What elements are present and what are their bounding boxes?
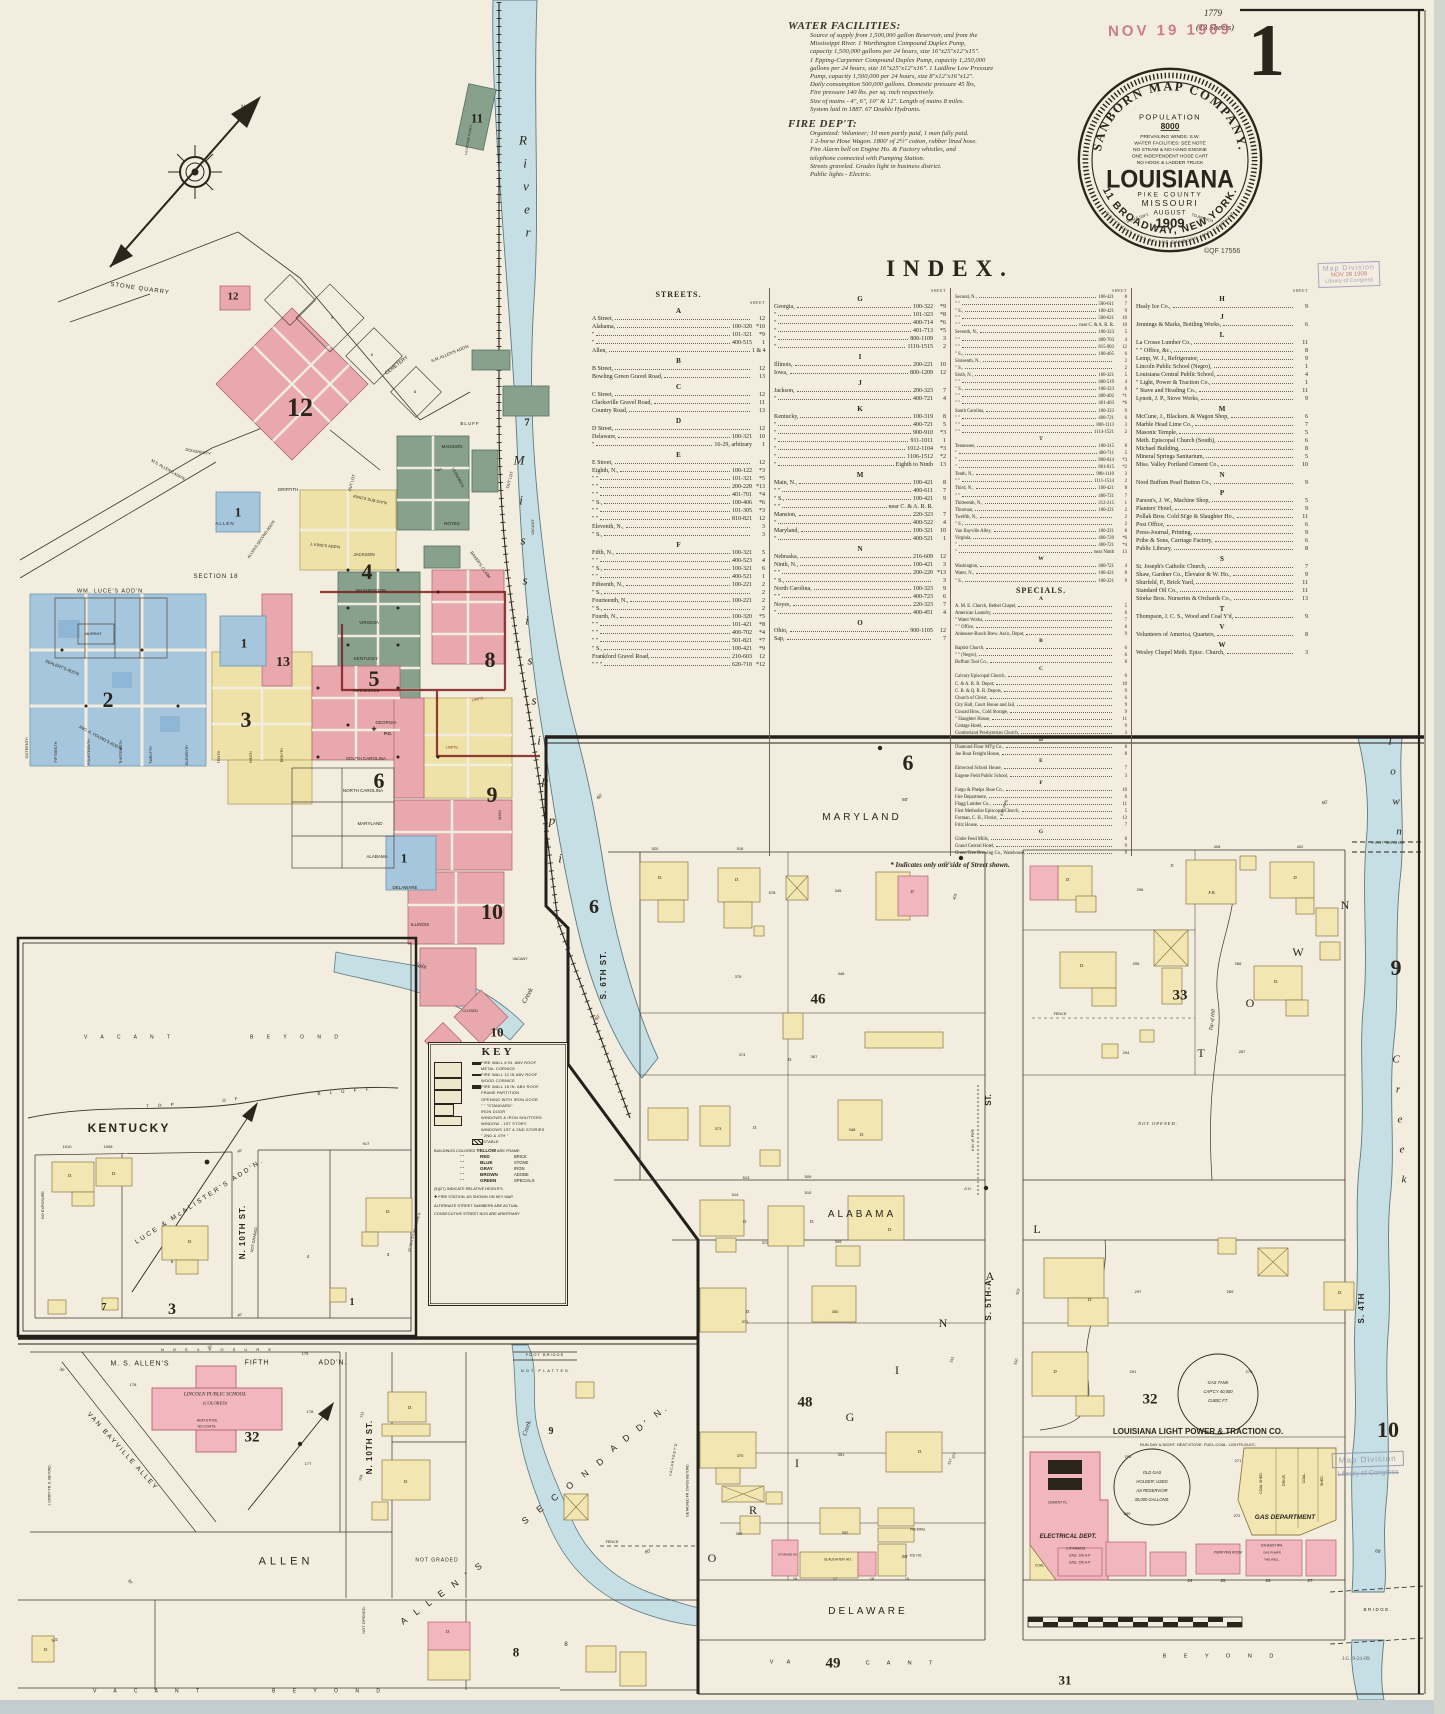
index-entry-sheet: 7 — [933, 636, 946, 643]
index-entry: Nord Buffum Pearl Button Co.,9 — [1136, 479, 1308, 487]
index-entry-range: 1012-1104 — [907, 446, 933, 453]
index-entry-sheet: 5 — [1295, 430, 1308, 437]
index-entry-sheet: 2 — [933, 344, 946, 351]
index-entry-name: Illinois, — [774, 362, 793, 369]
index-entry-range: 101-323 — [913, 312, 933, 319]
index-entry: "800-814*3 — [955, 456, 1127, 463]
index-entry-name: " S., — [955, 352, 963, 357]
index-entry: Lemp, W. J., Refrigerator,9 — [1136, 355, 1308, 363]
index-entry: Parson's, J. W., Machine Shop,5 — [1136, 497, 1308, 505]
index-entry: Flagg Lumber Co.,11 — [955, 800, 1127, 807]
index-entry-sheet: 11 — [752, 400, 765, 407]
seal-note-line: WATER FACILITIES: SEE NOTE — [1134, 140, 1206, 146]
index-entry-range: 400-522 — [913, 520, 933, 527]
index-entry-sheet: *12 — [752, 662, 765, 669]
index-entry: Mineral Springs Sanitarium,5 — [1136, 453, 1308, 461]
index-entry-sheet: 8 — [1295, 632, 1308, 639]
index-entry-name: Delaware, — [592, 434, 616, 441]
index-entry-name: Iowa, — [774, 370, 788, 377]
scanner-edge-bottom — [0, 1700, 1445, 1714]
index-entry: "400-5151 — [592, 339, 765, 347]
library-stamp-bottom: Map Division Library of Congress — [1332, 1451, 1405, 1478]
index-letter: V — [1136, 623, 1308, 631]
index-entry-name: City Hall, Court House and Jail, — [955, 703, 1015, 708]
index-entry-sheet: 7 — [1114, 823, 1127, 828]
key-footer-line: CONSECUTIVE STREET NOS ARE ARBITRARY — [434, 1211, 562, 1217]
index-leader — [1223, 321, 1293, 326]
index-leader — [604, 589, 750, 594]
index-entry-name: " S., — [592, 606, 602, 613]
index-leader — [1175, 505, 1293, 510]
index-entry-sheet: 7 — [1114, 302, 1127, 307]
index-entry-range: 400-519 — [1098, 380, 1114, 385]
index-entry: Planters' Hotel,9 — [1136, 505, 1308, 513]
index-entry: Thompson, J. C. S., Wood and Coal Y'd,9 — [1136, 613, 1308, 621]
index-entry-name: Thurman, — [955, 508, 973, 513]
index-leader — [965, 350, 1096, 355]
index-entry-sheet: 6 — [1114, 352, 1127, 357]
index-entry: Thirteenth, N.,212-2151 — [955, 499, 1127, 506]
index-entry-sheet: 3 — [1114, 423, 1127, 428]
index-entry-name: St. Joseph's Catholic Church, — [1136, 564, 1206, 571]
index-leader — [600, 475, 730, 480]
index-entry-name: Church of Christ, — [955, 696, 988, 701]
index-entry: Second, N.,100-4218 — [955, 293, 1127, 300]
index-entry-name: Eleventh, N., — [592, 524, 624, 531]
index-leader — [814, 585, 911, 590]
index-entry-name: Louisiana Central Public School, — [1136, 372, 1215, 379]
index-entry: "101-321*9 — [592, 331, 765, 339]
index-entry: " " (Negro),6 — [955, 651, 1127, 658]
index-entry-name: Cumberland Presbyterian Church, — [955, 731, 1019, 736]
index-entry-sheet: 7 — [1295, 564, 1308, 571]
index-entry-name: " S., — [774, 578, 784, 585]
index-entry-name: " " — [592, 484, 598, 491]
index-entry: Noyes,220-3237 — [774, 601, 946, 609]
index-leader — [786, 577, 931, 582]
index-letter: M — [1136, 405, 1308, 413]
index-entry-sheet: 12 — [752, 392, 765, 399]
index-entry-name: Eighth, N., — [592, 468, 618, 475]
index-entry-name: " — [774, 446, 776, 453]
index-entry-sheet: *4 — [1114, 543, 1127, 548]
index-entry-range: 1111-1514 — [1094, 479, 1114, 484]
index-leader — [600, 637, 730, 642]
index-entry-sheet: 9 — [1114, 579, 1127, 584]
index-entry: Fifth, N.,100-3215 — [592, 549, 765, 557]
index-entry-range: 400-521 — [913, 536, 933, 543]
index-leader — [778, 445, 905, 450]
index-column-streets-1: STREETS.SHEETAA Street,12Alabama,100-320… — [588, 288, 769, 856]
index-leader — [1006, 786, 1112, 791]
key-row-label: STABLE — [483, 1139, 499, 1145]
index-entry-range: 1110-1515 — [907, 344, 933, 351]
index-entry: Clarksville Gravel Road,11 — [592, 399, 765, 407]
index-entry-sheet: 7 — [1295, 422, 1308, 429]
index-entry-range: 100-421 — [732, 646, 752, 653]
index-entry-name: " — [774, 454, 776, 461]
index-entry-sheet: 10 — [1295, 462, 1308, 469]
note-line: Pump, capacity 1,500,000 per 24 hours, s… — [788, 73, 1118, 81]
index-entry-sheet: 12 — [752, 654, 765, 661]
index-leader — [1199, 387, 1293, 392]
library-stamp-top: Map Division NOV 28 1909 Library of Cong… — [1318, 261, 1381, 288]
index-entry-range: 16-29, arbitrary — [714, 442, 752, 449]
index-entry-name: " — [774, 328, 776, 335]
index-leader — [985, 499, 1097, 504]
index-entry: Virginia,400-720*6 — [955, 534, 1127, 541]
index-entry: " "400-7034 — [955, 336, 1127, 343]
index-leader — [959, 541, 1096, 546]
index-entry: " "400-402*1 — [955, 392, 1127, 399]
index-entry-range: 100-221 — [1098, 579, 1114, 584]
index-entry-name: " S., — [592, 532, 602, 539]
index-leader — [1022, 807, 1112, 812]
index-entry-range: 100-319 — [913, 414, 933, 421]
index-entry-sheet: *6 — [1114, 536, 1127, 541]
index-entry-range: 400-721 — [1098, 416, 1114, 421]
index-entry-name: Joe Boat Freight House, — [955, 752, 1000, 757]
index-entry-sheet: 6 — [933, 594, 946, 601]
index-entry: A. M. E. Church, Bethel Chapel,5 — [955, 602, 1127, 609]
index-entry-name: Pribe & Sons, Carriage Factory, — [1136, 538, 1213, 545]
index-leader — [1200, 355, 1293, 360]
index-entry: Elmwood School House,7 — [955, 764, 1127, 771]
index-entry-sheet: 4 — [1295, 372, 1308, 379]
index-letter: J — [774, 379, 946, 387]
index-entry-name: " " Office, — [955, 625, 974, 630]
index-leader — [600, 483, 730, 488]
index-entry-sheet: 8 — [1295, 446, 1308, 453]
seal-note-line: ONE INDEPENDENT HOSE CART — [1132, 154, 1209, 160]
index-entry-sheet: 7 — [933, 388, 946, 395]
index-entry-range: 100-321 — [732, 434, 752, 441]
index-entry-sheet: 2 — [752, 598, 765, 605]
index-entry-sheet: 9 — [1114, 844, 1127, 849]
index-leader — [664, 373, 750, 378]
index-entry-sheet: 6 — [1114, 416, 1127, 421]
index-entry-name: Press-Journal, Printing, — [1136, 530, 1192, 537]
index-entry-sheet: 10 — [933, 528, 946, 535]
index-entry-sheet: 2 — [1114, 430, 1127, 435]
index-entry-sheet: 8 — [1295, 348, 1308, 355]
index-leader — [782, 503, 886, 508]
index-leader — [975, 506, 1096, 511]
index-entry-name: Ninth, N., — [774, 562, 798, 569]
note-line: Organized: Volunteer; 10 men partly paid… — [788, 130, 1118, 138]
index-entry-sheet: 13 — [752, 408, 765, 415]
index-entry-sheet: 2 — [1114, 359, 1127, 364]
index-entry-name: Lynott, J. P., Stove Works, — [1136, 396, 1199, 403]
surveyor-note: J.G. 9-21-09 — [1342, 1656, 1370, 1662]
index-leader — [1174, 545, 1293, 550]
index-entry-range: 100-323 — [913, 586, 933, 593]
index-leader — [975, 371, 1096, 376]
index-entry-name: North Carolina, — [774, 586, 812, 593]
index-entry-sheet: 5 — [1295, 454, 1308, 461]
index-entry-range: 100-421 — [1098, 571, 1114, 576]
index-entry-name: " S., — [592, 500, 602, 507]
index-entry: Church of Christ,6 — [955, 694, 1127, 701]
index-entry-sheet: *4 — [752, 630, 765, 637]
index-leader — [1215, 537, 1293, 542]
index-entry-name: Lincoln Public School (Negro), — [1136, 364, 1212, 371]
index-entry-name: Sap, — [774, 636, 785, 643]
index-entry-name: Flagg Lumber Co., — [955, 802, 991, 807]
index-entry-range: 200-221 — [913, 362, 933, 369]
index-entry: " S.,2 — [592, 589, 765, 597]
index-entry-sheet: 9 — [1295, 572, 1308, 579]
index-entry: Ninth, N.,100-4213 — [774, 561, 946, 569]
index-entry: " "500-62110 — [955, 314, 1127, 321]
index-entry-sheet: 8 — [1114, 745, 1127, 750]
index-entry-range: 100-321 — [732, 566, 752, 573]
index-entry-range: 810-821 — [732, 516, 752, 523]
index-entry: Country Road,13 — [592, 407, 765, 415]
index-entry-range: 100-323 — [1098, 387, 1114, 392]
index-leader — [620, 613, 730, 618]
index-leader — [600, 573, 730, 578]
index-entry-sheet: 9 — [1295, 530, 1308, 537]
index-entry-name: " " — [955, 338, 960, 343]
index-leader — [801, 527, 911, 532]
index-entry-range: 100-421 — [913, 496, 933, 503]
index-entry-sheet: *8 — [752, 622, 765, 629]
index-entry-sheet: 13 — [1295, 596, 1308, 603]
key-bld-pre: BUILDINGS COLORED — [434, 1148, 475, 1153]
index-entry-name: Frankford Gravel Road, — [592, 654, 649, 661]
index-entry: "400-5224 — [774, 519, 946, 527]
index-entry-name: Diamond Flour M'f'g Co., — [955, 745, 1004, 750]
index-entry-name: Fifteenth, N., — [592, 582, 624, 589]
index-entry-name: Storke Bros. Nurseries & Orchards Co., — [1136, 596, 1232, 603]
index-leader — [980, 821, 1112, 826]
index-entry-range: 100-122 — [732, 468, 752, 475]
index-entry-name: La Crosse Lumber Co., — [1136, 340, 1192, 347]
index-entry: " "400-5211 — [592, 573, 765, 581]
index-entry-sheet: *8 — [933, 312, 946, 319]
index-letter: N — [1136, 471, 1308, 479]
index-entry: Seventh, N.,100-3235 — [955, 328, 1127, 335]
index-entry-name: " " — [955, 380, 960, 385]
index-letter: G — [774, 295, 946, 303]
index-entry: Main, N.,100-4218 — [774, 479, 946, 487]
index-entry-name: Eugene Field Public School, — [955, 774, 1008, 779]
index-entry-range: 200-220 — [732, 484, 752, 491]
index-entry: "401-713*5 — [774, 327, 946, 335]
index-leader — [965, 385, 1096, 390]
index-entry-name: Kentucky, — [774, 414, 798, 421]
index-entry: Sixth, N.,100-3215 — [955, 371, 1127, 378]
index-entry-sheet: 8 — [1114, 660, 1127, 665]
index-entry-sheet: *2 — [1114, 465, 1127, 470]
index-entry-sheet: 2 — [752, 590, 765, 597]
index-leader — [782, 593, 911, 598]
index-leader — [797, 387, 912, 392]
index-entry: " "810-82112 — [592, 515, 765, 523]
index-leader — [1206, 453, 1293, 458]
key-footer-line: ✚ FIRE STATION, AS SHOWN ON KEY MAP. — [434, 1194, 562, 1200]
index-entry-name: " " — [955, 323, 960, 328]
index-entry-name: Marble Head Lime Co., — [1136, 422, 1193, 429]
index-entry-sheet: 6 — [1114, 795, 1127, 800]
index-entry: " "400-7216 — [955, 414, 1127, 421]
index-entry: Delaware,100-32110 — [592, 433, 765, 441]
index-sheet-header: SHEET — [592, 300, 765, 305]
seal-note-line: PREVAILING WINDS: S.W. — [1140, 134, 1200, 140]
index-leader — [962, 336, 1096, 341]
index-entry: Eighth, N.,100-122*3 — [592, 467, 765, 475]
index-leader — [797, 303, 911, 308]
index-entry: Jennings & Marks, Bottling Works,6 — [1136, 321, 1308, 329]
index-entry-name: " — [774, 430, 776, 437]
index-entry-sheet: 2 — [752, 606, 765, 613]
index-entry-range: 100-406 — [732, 500, 752, 507]
index-entry-sheet: 4 — [1114, 338, 1127, 343]
index-entry: Buffum Tool Co.,8 — [955, 658, 1127, 665]
index-entry: Thurman,100-2212 — [955, 506, 1127, 513]
index-entry-range: 210-603 — [732, 654, 752, 661]
index-letter: P — [1136, 489, 1308, 497]
index-leader — [626, 523, 750, 528]
index-entry-range: 400-721 — [1098, 494, 1114, 499]
index-entry-range: 401-701 — [732, 492, 752, 499]
index-leader — [1026, 630, 1112, 635]
index-entry-name: " Light, Power & Traction Co., — [1136, 380, 1210, 387]
index-entry-name: " " — [592, 492, 598, 499]
index-entry-sheet: 3 — [1295, 650, 1308, 657]
index-entry: " " Office,6 — [955, 623, 1127, 630]
index-entry-name: Buffum Tool Co., — [955, 660, 988, 665]
key-color-desc: SPECIALS — [514, 1178, 534, 1184]
sanborn-map-sheet: RiverMississippi11LA CROSSE PLAN'G7STONE… — [0, 0, 1445, 1714]
index-leader — [962, 392, 1096, 397]
index-entry: " "800-11133 — [955, 421, 1127, 428]
index-entry-sheet: 8 — [1295, 546, 1308, 553]
index-entry-range: 1106-1512 — [907, 454, 933, 461]
index-leader — [800, 553, 911, 558]
key-sample-building — [434, 1060, 468, 1122]
index-entry-sheet: 1 — [1295, 364, 1308, 371]
index-entry-name: " — [955, 458, 957, 463]
index-entry-name: " " — [955, 430, 960, 435]
index-entry-sheet: 8 — [1114, 529, 1127, 534]
index-leader — [1194, 529, 1293, 534]
index-leader — [790, 369, 909, 374]
index-entry-sheet: 9 — [1114, 724, 1127, 729]
index-leader — [1027, 849, 1112, 854]
index-entry: " "near C. & A. R. R. — [774, 503, 946, 511]
index-leader — [976, 470, 1095, 475]
index-entry: Globe Feed Mills,8 — [955, 835, 1127, 842]
index-letter: N — [774, 545, 946, 553]
index-leader — [620, 467, 730, 472]
index-entry: "911-10111 — [774, 437, 946, 445]
index-entry-range: 100-321 — [1098, 373, 1114, 378]
index-entry: " "501-821*7 — [592, 637, 765, 645]
index-entry-name: " — [592, 442, 594, 449]
index-entry: Sap,7 — [774, 635, 946, 643]
index-entry-sheet: *9 — [752, 646, 765, 653]
index-entry-sheet: 9 — [1114, 689, 1127, 694]
index-entry-sheet: *2 — [933, 454, 946, 461]
index-entry: South Carolina,100-3239 — [955, 407, 1127, 414]
index-leader — [1010, 708, 1112, 713]
index-entry-name: Globe Feed Mills, — [955, 837, 989, 842]
index-leader — [1214, 479, 1293, 484]
index-entry-range: 400-702 — [732, 630, 752, 637]
index-entry: "801-815*2 — [955, 463, 1127, 470]
index-leader — [778, 461, 893, 466]
index-columns: STREETS.SHEETAA Street,12Alabama,100-320… — [588, 288, 1312, 856]
index-entry-sheet: 3 — [1114, 774, 1127, 779]
index-entry-range: 100-421 — [1098, 295, 1114, 300]
index-entry: C Street,12 — [592, 391, 765, 399]
index-leader — [1180, 587, 1293, 592]
index-leader — [600, 629, 730, 634]
index-entry-name: McCune, J., Blacksm. & Wagon Shop, — [1136, 414, 1229, 421]
index-leader — [778, 429, 911, 434]
index-entry: " Stave and Heading Co.,11 — [1136, 387, 1308, 395]
index-entry-name: Wesley Chapel Meth. Episc. Church, — [1136, 650, 1225, 657]
index-entry-name: " — [774, 536, 776, 543]
index-entry-sheet: 5 — [752, 550, 765, 557]
index-entry-sheet: 8 — [1114, 837, 1127, 842]
index-leader — [1217, 371, 1293, 376]
index-entry-sheet: *4 — [752, 492, 765, 499]
index-entry: Healy Ice Co.,9 — [1136, 303, 1308, 311]
index-entry-sheet: 2 — [1114, 366, 1127, 371]
index-entry-name: Ohio, — [774, 628, 788, 635]
index-entry: "near Ninth13 — [955, 548, 1127, 555]
index-leader — [994, 527, 1097, 532]
index-leader — [800, 561, 911, 566]
index-entry: Cumberland Presbyterian Church,3 — [955, 729, 1127, 736]
index-leader — [962, 321, 1077, 326]
index-leader — [1217, 631, 1293, 636]
index-entry-sheet: 7 — [1114, 494, 1127, 499]
index-leader — [793, 601, 911, 606]
index-leader — [962, 492, 1096, 497]
index-entry-sheet: 1 & 4 — [752, 348, 765, 355]
index-leader — [596, 441, 712, 446]
map-key-legend: KEY FIRE WALL 6 IN. ABV ROOFMETAL CORNIC… — [428, 1042, 568, 1306]
index-entry-sheet: 12 — [1114, 345, 1127, 350]
index-entry: Mansion,220-3237 — [774, 511, 946, 519]
index-entry: " S.,100-4056 — [955, 350, 1127, 357]
index-leader — [790, 627, 909, 632]
index-entry: Volunteers of America, Quarters,8 — [1136, 631, 1308, 639]
index-entry-sheet: 5 — [1114, 809, 1127, 814]
index-entry-range: 800-1209 — [910, 370, 933, 377]
index-column-streets-specials: SHEETSecond, N.,100-4218" "500-6117" S.,… — [950, 288, 1131, 856]
index-leader — [604, 661, 730, 666]
index-entry-sheet: 8 — [1114, 295, 1127, 300]
index-entry: " S.,2 — [955, 364, 1127, 371]
index-leader — [615, 391, 750, 396]
index-entry: Washington,400-7214 — [955, 562, 1127, 569]
index-leader — [962, 428, 1092, 433]
index-entry-name: " " — [955, 316, 960, 321]
water-facilities-title: WATER FACILITIES: — [788, 20, 1118, 32]
index-entry-name: " — [774, 320, 776, 327]
index-entry-sheet: 3 — [1114, 472, 1127, 477]
index-leader — [962, 343, 1096, 348]
index-entry-sheet: *6 — [933, 320, 946, 327]
index-entry: " Water Works,7 — [955, 616, 1127, 623]
index-entry-sheet: 4 — [1114, 380, 1127, 385]
index-entry-name: " — [774, 462, 776, 469]
